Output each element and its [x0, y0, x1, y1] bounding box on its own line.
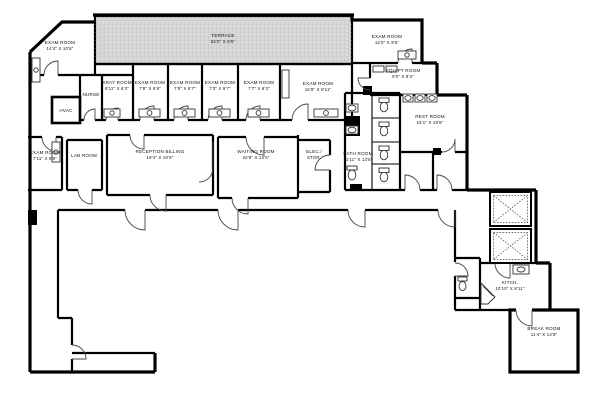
pier: [350, 184, 362, 191]
room-label-rest: REST ROOM: [415, 114, 445, 119]
sink-icon: [217, 111, 222, 116]
toilet-icon: [458, 277, 467, 281]
toilet-icon: [459, 282, 466, 291]
room-label-exam-4: EXAM ROOM: [244, 80, 274, 85]
elevators: [490, 192, 531, 263]
room-dims-break: 11'4" X 14'8": [531, 332, 558, 337]
room-label-hvac: HVAC: [59, 108, 73, 113]
room-label-waiting: WAITING ROOM: [237, 149, 274, 154]
room-dims-exam-3: 7'3" X 9'7": [209, 86, 231, 91]
toilet-icon: [348, 170, 356, 180]
sink-icon: [429, 96, 435, 101]
toilet-icon: [347, 166, 357, 170]
rest-room-walls: [400, 152, 467, 190]
nurse-xray-walls: [80, 75, 102, 120]
room-dims-waiting: 20'8" X 13'0": [243, 155, 270, 160]
room-dims-exam-wide: 16'8" X 8'11": [305, 87, 332, 92]
door-arc: [84, 109, 95, 120]
door-arc: [455, 263, 468, 276]
counter: [282, 70, 289, 98]
room-dims-exam-4: 7'7" X 9'3": [248, 86, 270, 91]
door-arc: [292, 104, 308, 120]
reception-counter: [199, 142, 213, 182]
sink-icon: [517, 267, 525, 272]
room-dims-equip: 9'0" X 8'3": [392, 74, 414, 79]
floor-plan-drawing: EXAM ROOM 14'4" X 10'8" TERRACE 52'0" X …: [0, 0, 600, 400]
room-dims-exam-tr: 12'0" X 9'5": [375, 40, 400, 45]
room-label-xray: XRAY ROOM: [102, 80, 131, 85]
break-room-wall: [510, 310, 578, 372]
room-dims-exam-2: 7'8" X 9'7": [174, 86, 196, 91]
door-arc: [438, 210, 455, 227]
pier: [28, 210, 37, 225]
reception-walls: [107, 135, 213, 195]
room-label-exam-3: EXAM ROOM: [205, 80, 235, 85]
room-dims-exam-tl: 14'4" X 10'8": [47, 46, 74, 51]
left-bottom-wall: [30, 52, 155, 372]
equipment: [373, 66, 384, 72]
door-arc: [405, 175, 420, 190]
room-dims-reception: 19'4" X 10'8": [147, 155, 174, 160]
door-arc: [150, 195, 166, 211]
room-dims-bath: 11'11" X 13'8": [344, 157, 373, 162]
waiting-walls: [218, 135, 298, 198]
room-dims-exam-left: 7'11" X 9'9": [33, 156, 57, 161]
room-label-exam-wide: EXAM ROOM: [303, 81, 333, 86]
sink-icon: [34, 68, 38, 72]
sink-icon: [348, 127, 356, 133]
room-dims-elec: STOR.: [307, 155, 321, 160]
door-arc: [437, 175, 452, 190]
room-label-kitch: KITCH.: [502, 280, 518, 285]
right-wing-wall: [422, 63, 550, 310]
toilet-icon: [380, 126, 388, 136]
lab-walls: [67, 140, 102, 190]
door-arc: [78, 190, 92, 204]
sink-icon: [405, 53, 409, 57]
door-arc: [348, 210, 365, 227]
room-dims-terrace: 52'0" X 9'5": [211, 39, 236, 44]
door-arc: [516, 310, 532, 326]
room-label-bath: BATH ROOM: [343, 151, 372, 156]
room-label-break: BREAK ROOM: [527, 326, 560, 331]
door-arc: [130, 135, 144, 149]
toilet-icon: [380, 172, 388, 182]
room-label-exam-2: EXAM ROOM: [170, 80, 200, 85]
sink-icon: [182, 111, 187, 116]
door-arc: [218, 210, 238, 230]
room-label-reception: RECEPTION BILLING: [135, 149, 184, 154]
door-arc: [232, 198, 248, 214]
room-dims-kitch: 10'10" X 8'11": [495, 286, 524, 291]
lower-left-walls: [58, 210, 155, 372]
room-dims-rest: 16'1" X 19'8": [417, 120, 444, 125]
toilet-icon: [380, 150, 388, 160]
wc-walls: [455, 258, 480, 310]
floor-plan: EXAM ROOM 14'4" X 10'8" TERRACE 52'0" X …: [0, 0, 600, 400]
pier: [363, 86, 372, 95]
room-label-equip: EQUIPT ROOM: [386, 68, 421, 73]
room-label-exam-1: EXAM ROOM: [135, 80, 165, 85]
door-arc: [44, 61, 58, 75]
room-label-exam-tl: EXAM ROOM: [45, 40, 75, 45]
sink-icon: [256, 111, 261, 116]
door-arc: [442, 139, 455, 152]
door-arc: [125, 210, 145, 230]
pier: [433, 148, 441, 155]
room-label-lab: LAB ROOM: [71, 153, 97, 158]
room-label-exam-left: EXAM ROOM: [30, 150, 60, 155]
room-dims-exam-1: 7'8" X 9'8": [139, 86, 161, 91]
sink-icon: [324, 111, 329, 116]
room-label-terrace: TERRACE: [211, 33, 234, 38]
elec-walls: [298, 140, 330, 192]
room-label-elec: ELEC./: [306, 149, 322, 154]
sink-icon: [110, 111, 114, 115]
sink-icon: [348, 105, 356, 111]
toilet-icon: [380, 102, 388, 112]
sink-icon: [147, 111, 152, 116]
door-arc: [495, 263, 510, 278]
room-label-exam-tr: EXAM ROOM: [372, 34, 402, 39]
room-label-nurse: NURSE: [82, 92, 99, 97]
room-dims-xray: 8'11" X 6'3": [105, 86, 129, 91]
sink-icon: [417, 96, 423, 101]
sink-icon: [405, 96, 411, 101]
